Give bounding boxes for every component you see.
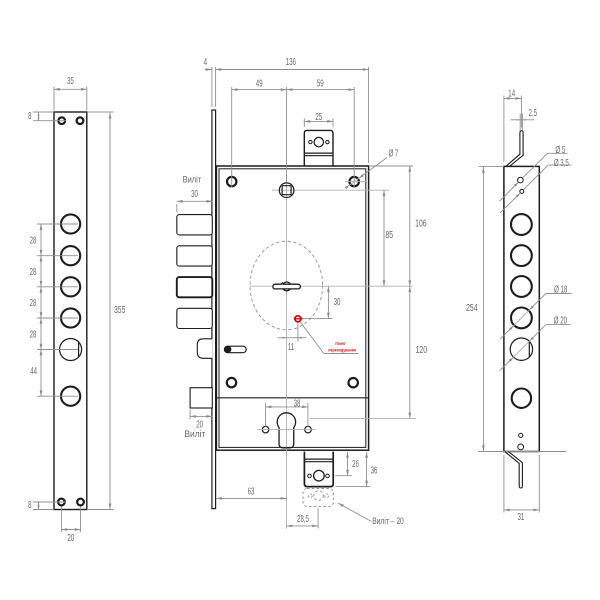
svg-text:Ø 18: Ø 18: [554, 283, 567, 295]
svg-text:Виліт – 20: Виліт – 20: [372, 516, 404, 526]
svg-text:136: 136: [286, 55, 296, 67]
svg-text:59: 59: [317, 77, 324, 89]
svg-text:36: 36: [371, 464, 378, 476]
svg-text:49: 49: [256, 77, 263, 89]
svg-text:38: 38: [294, 397, 301, 409]
svg-text:106: 106: [415, 217, 427, 229]
svg-text:Ø 5: Ø 5: [555, 143, 565, 155]
svg-text:14: 14: [508, 87, 515, 99]
svg-text:2,5: 2,5: [529, 106, 538, 118]
svg-text:28: 28: [30, 296, 37, 308]
svg-text:Ø 3,5: Ø 3,5: [554, 156, 569, 168]
svg-text:8: 8: [28, 109, 32, 121]
svg-text:85: 85: [385, 229, 393, 241]
svg-text:перекодування: перекодування: [328, 347, 356, 352]
svg-text:30: 30: [191, 187, 198, 199]
svg-text:28,5: 28,5: [297, 512, 309, 524]
svg-text:30: 30: [334, 295, 341, 307]
svg-text:20: 20: [67, 531, 74, 543]
svg-text:Виліт: Виліт: [183, 175, 202, 185]
svg-text:26: 26: [352, 457, 359, 469]
svg-text:28: 28: [30, 328, 37, 340]
svg-text:28: 28: [30, 234, 37, 246]
svg-text:44: 44: [30, 364, 37, 376]
svg-text:28: 28: [30, 265, 37, 277]
svg-text:11: 11: [288, 340, 295, 352]
svg-text:254: 254: [466, 302, 478, 314]
svg-text:63: 63: [248, 485, 255, 497]
svg-text:4: 4: [204, 55, 208, 67]
svg-text:31: 31: [517, 510, 524, 522]
svg-text:355: 355: [114, 304, 126, 316]
svg-text:Ø 7: Ø 7: [389, 147, 399, 159]
svg-text:8: 8: [28, 498, 32, 510]
svg-text:Гвинт: Гвинт: [335, 341, 345, 347]
svg-text:25: 25: [315, 110, 322, 122]
svg-text:35: 35: [67, 74, 74, 86]
svg-text:Ø 20: Ø 20: [554, 314, 567, 326]
svg-text:Виліт: Виліт: [184, 429, 205, 440]
svg-text:120: 120: [416, 343, 428, 355]
